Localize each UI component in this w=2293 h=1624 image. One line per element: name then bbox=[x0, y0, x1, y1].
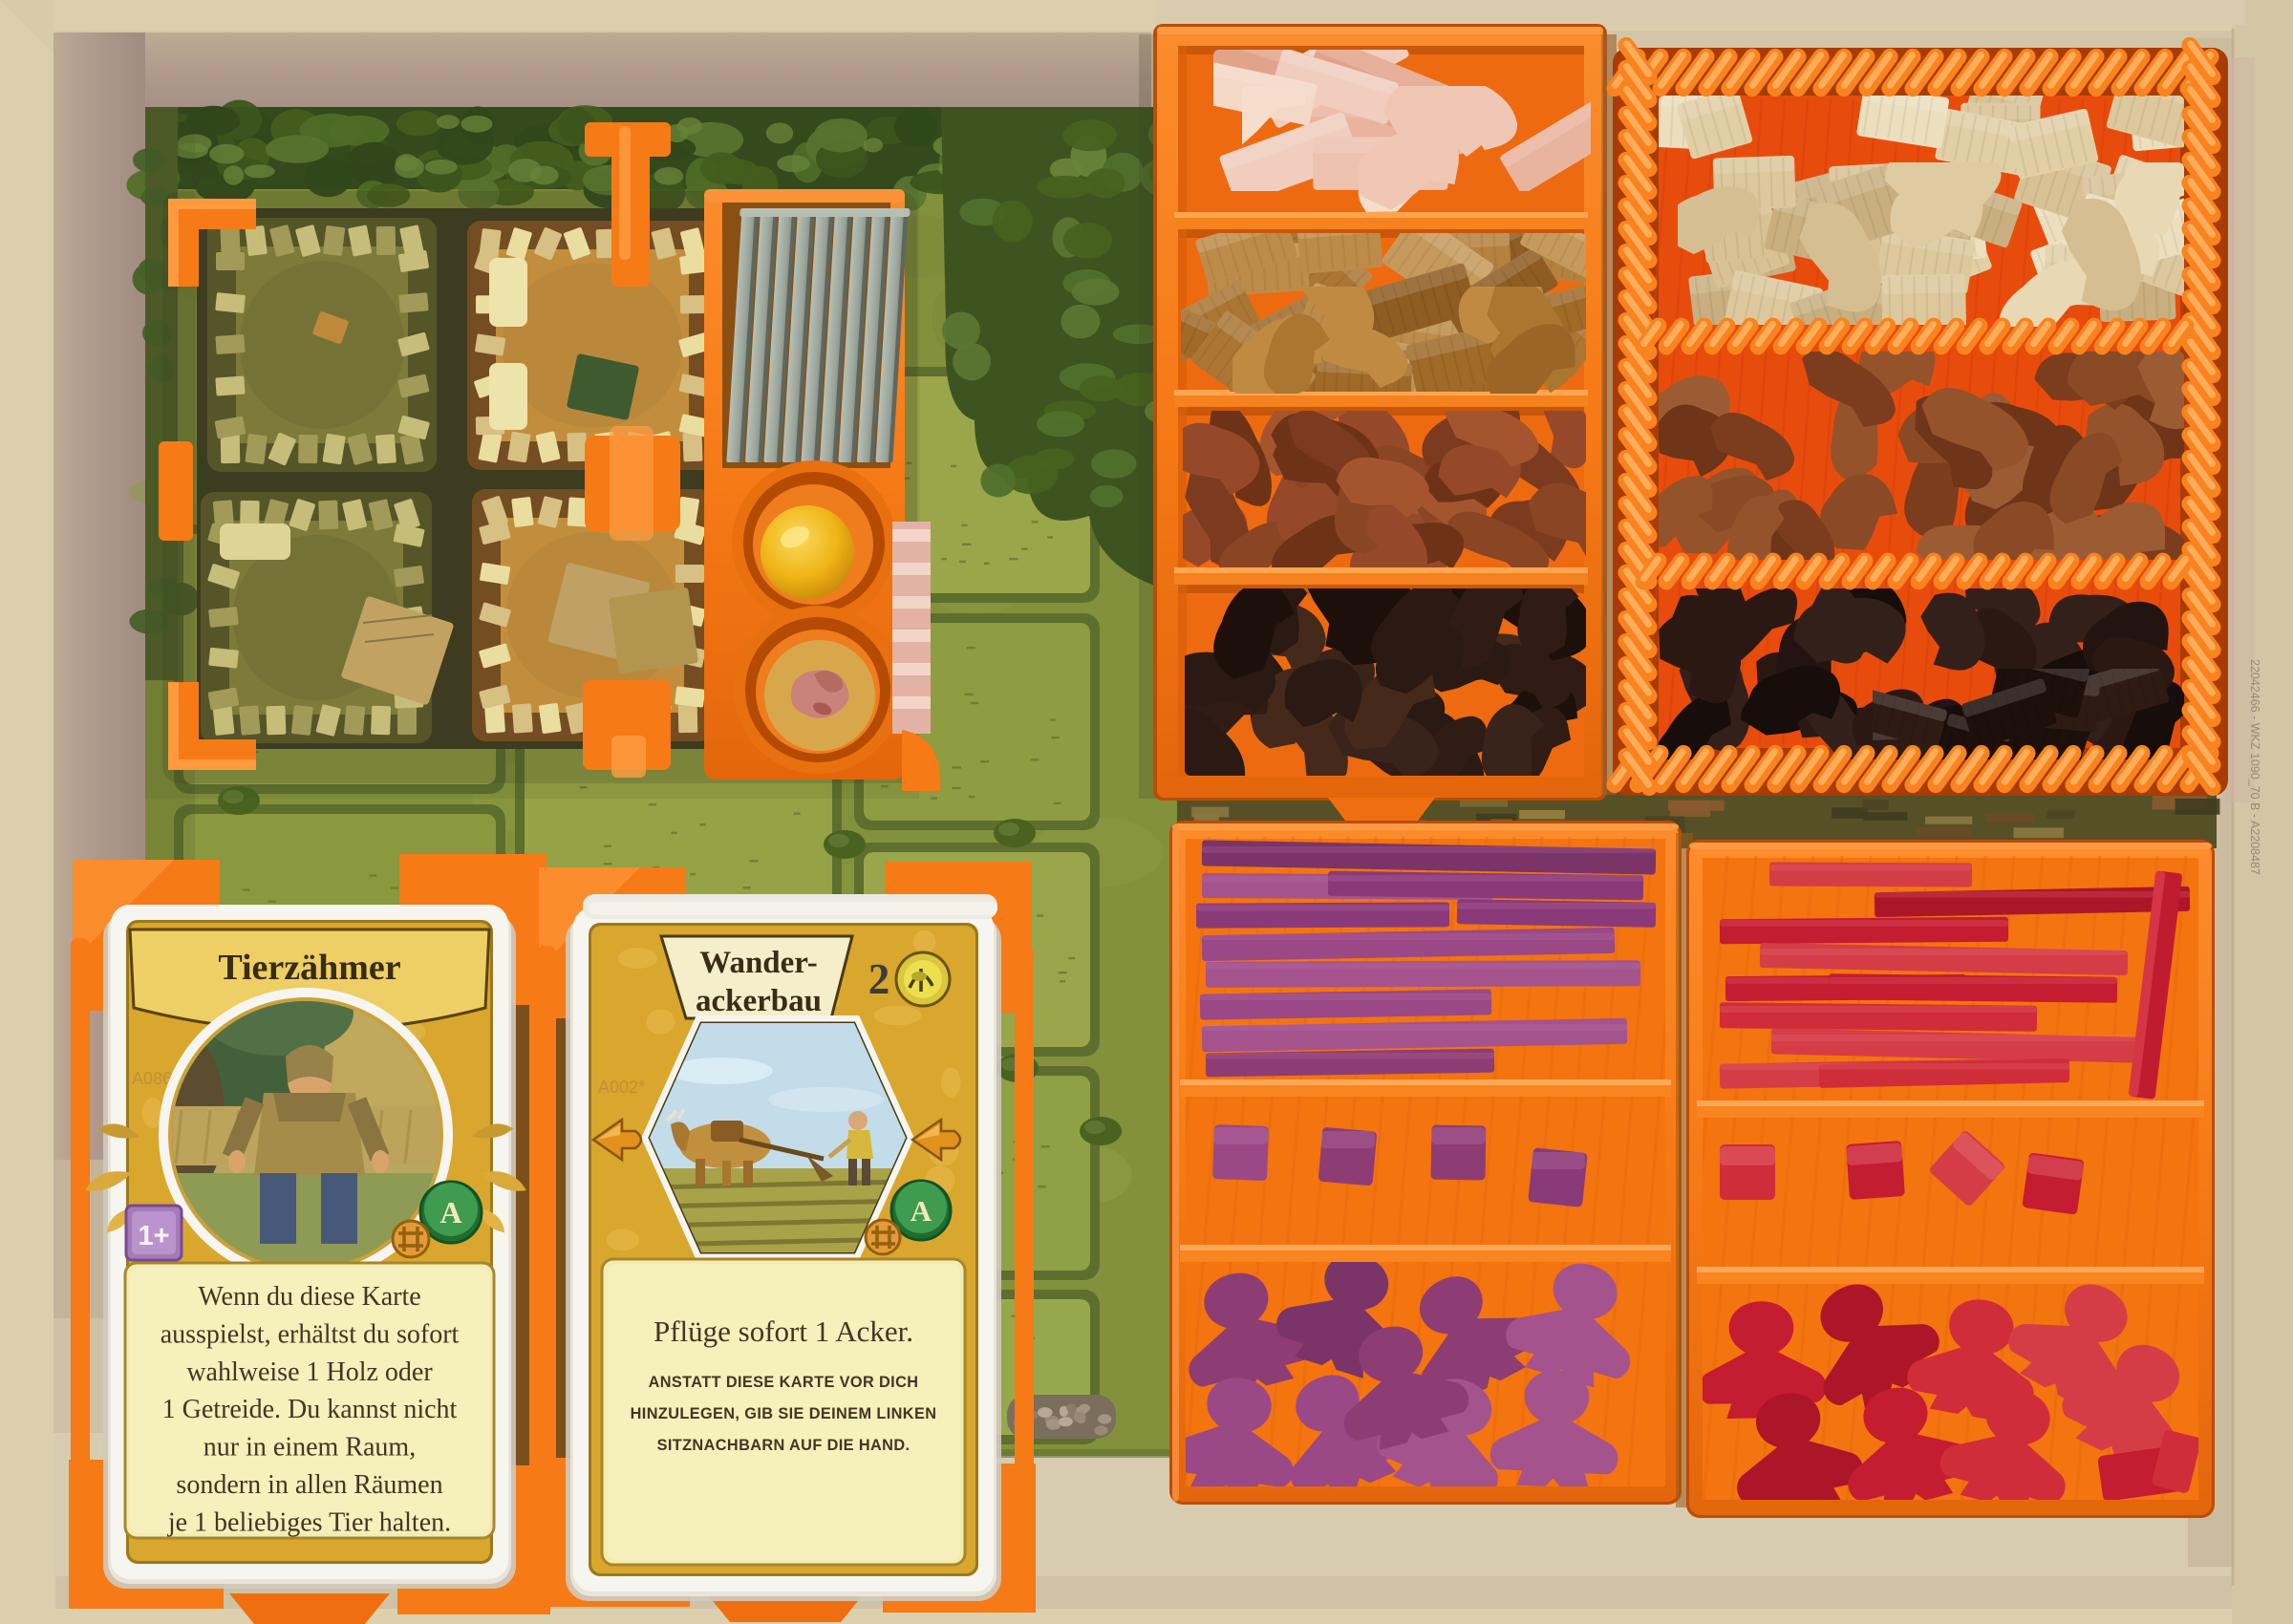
svg-text:2: 2 bbox=[868, 955, 890, 1003]
svg-text:Tierzähmer: Tierzähmer bbox=[218, 948, 400, 988]
svg-text:sondern in allen Räumen: sondern in allen Räumen bbox=[176, 1470, 442, 1500]
svg-text:ANSTATT DIESE KARTE VOR DICH: ANSTATT DIESE KARTE VOR DICH bbox=[649, 1374, 919, 1391]
svg-text:Pflüge sofort 1 Acker.: Pflüge sofort 1 Acker. bbox=[654, 1314, 913, 1348]
svg-text:1 Getreide. Du kannst nicht: 1 Getreide. Du kannst nicht bbox=[162, 1395, 458, 1424]
svg-text:ackerbau: ackerbau bbox=[696, 984, 822, 1018]
svg-text:A002*: A002* bbox=[598, 1078, 645, 1097]
svg-text:Wenn du diese Karte: Wenn du diese Karte bbox=[198, 1282, 420, 1312]
svg-text:A: A bbox=[911, 1194, 932, 1228]
svg-text:Wander-: Wander- bbox=[699, 946, 817, 980]
svg-text:wahlweise 1 Holz oder: wahlweise 1 Holz oder bbox=[186, 1357, 433, 1387]
svg-text:HINZULEGEN, GIB SIE DEINEM LIN: HINZULEGEN, GIB SIE DEINEM LINKEN bbox=[631, 1405, 937, 1422]
svg-text:SITZNACHBARN AUF DIE HAND.: SITZNACHBARN AUF DIE HAND. bbox=[657, 1437, 911, 1454]
svg-text:nur in einem Raum,: nur in einem Raum, bbox=[204, 1433, 416, 1463]
svg-text:je 1 beliebiges Tier halten.: je 1 beliebiges Tier halten. bbox=[167, 1507, 451, 1537]
svg-text:1+: 1+ bbox=[138, 1221, 169, 1251]
svg-text:22042466 - WKZ 1090_70 B - A22: 22042466 - WKZ 1090_70 B - A2208487 bbox=[2248, 659, 2261, 875]
svg-text:ausspielst, erhältst du sofort: ausspielst, erhältst du sofort bbox=[161, 1319, 460, 1349]
svg-text:A: A bbox=[439, 1195, 461, 1229]
